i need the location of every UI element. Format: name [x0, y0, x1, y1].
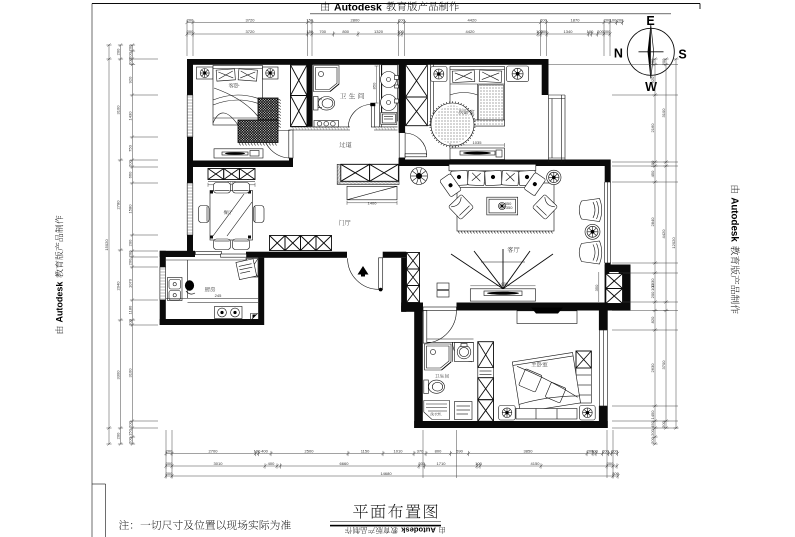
svg-text:100: 100: [591, 448, 598, 453]
svg-text:200: 200: [127, 44, 132, 51]
svg-text:15020: 15020: [104, 239, 109, 251]
svg-text:100: 100: [587, 29, 594, 34]
svg-text:200: 200: [115, 432, 120, 439]
svg-text:2160: 2160: [650, 123, 655, 133]
svg-text:E: E: [646, 14, 654, 28]
svg-text:200: 200: [127, 420, 132, 427]
svg-text:2700: 2700: [209, 448, 219, 453]
svg-text:1035: 1035: [473, 140, 483, 145]
svg-text:920: 920: [650, 76, 655, 83]
svg-text:200: 200: [650, 291, 655, 298]
svg-text:4420: 4420: [661, 229, 666, 239]
svg-text:3700: 3700: [661, 360, 666, 370]
svg-text:660: 660: [127, 171, 132, 178]
svg-text:3100: 3100: [127, 368, 132, 378]
svg-text:200: 200: [127, 258, 132, 265]
svg-text:750: 750: [127, 144, 132, 151]
svg-text:1450: 1450: [650, 410, 655, 420]
svg-text:200: 200: [617, 17, 624, 22]
svg-text:200: 200: [398, 17, 405, 22]
svg-text:450: 450: [650, 170, 655, 177]
svg-text:590: 590: [456, 448, 463, 453]
svg-text:6660: 6660: [340, 461, 350, 466]
svg-text:3100: 3100: [115, 105, 120, 115]
svg-text:1710: 1710: [437, 461, 447, 466]
svg-text:2500: 2500: [305, 448, 315, 453]
svg-text:S: S: [678, 48, 686, 62]
svg-text:200: 200: [612, 471, 619, 476]
svg-text:100: 100: [127, 318, 132, 325]
svg-text:200: 200: [661, 420, 666, 427]
svg-text:200: 200: [650, 58, 655, 65]
svg-text:3850: 3850: [524, 448, 534, 453]
svg-text:12020: 12020: [671, 237, 676, 249]
svg-text:920: 920: [127, 76, 132, 83]
svg-text:820: 820: [650, 316, 655, 323]
svg-text:3300: 3300: [115, 370, 120, 380]
svg-text:4150: 4150: [531, 461, 541, 466]
svg-text:2630: 2630: [650, 363, 655, 373]
svg-text:2800: 2800: [351, 17, 361, 22]
svg-text:400: 400: [261, 448, 268, 453]
svg-text:700: 700: [319, 29, 326, 34]
svg-text:100: 100: [475, 461, 482, 466]
svg-text:800: 800: [342, 29, 349, 34]
svg-text:3010: 3010: [214, 461, 224, 466]
svg-text:N: N: [614, 47, 623, 61]
svg-text:1870: 1870: [571, 17, 581, 22]
svg-text:14680: 14680: [380, 471, 392, 476]
svg-text:1150: 1150: [361, 448, 370, 453]
svg-text:200: 200: [115, 48, 120, 55]
svg-text:100: 100: [650, 283, 655, 290]
svg-text:200: 200: [187, 17, 194, 22]
svg-text:200: 200: [602, 448, 609, 453]
svg-text:200: 200: [127, 250, 132, 257]
svg-text:1430: 1430: [127, 111, 132, 121]
svg-text:400: 400: [268, 461, 275, 466]
svg-text:1180: 1180: [127, 305, 132, 314]
svg-text:350: 350: [594, 284, 599, 291]
svg-text:200: 200: [650, 436, 655, 443]
svg-text:1320: 1320: [374, 29, 384, 34]
svg-text:3100: 3100: [661, 108, 666, 118]
svg-text:850: 850: [372, 82, 377, 89]
svg-text:4420: 4420: [466, 29, 476, 34]
svg-text:200: 200: [418, 461, 425, 466]
svg-text:2040: 2040: [115, 281, 120, 291]
svg-text:2780: 2780: [115, 200, 120, 210]
svg-text:100: 100: [254, 448, 261, 453]
svg-text:1350: 1350: [504, 205, 514, 210]
svg-text:800: 800: [435, 448, 442, 453]
svg-text:200: 200: [541, 29, 548, 34]
svg-text:1340: 1340: [564, 29, 574, 34]
svg-text:3720: 3720: [246, 17, 256, 22]
svg-text:200: 200: [127, 239, 132, 246]
svg-text:200: 200: [127, 159, 132, 166]
svg-text:150: 150: [127, 428, 132, 435]
svg-text:200: 200: [127, 51, 132, 58]
svg-text:1070: 1070: [127, 278, 132, 288]
svg-text:200: 200: [650, 428, 655, 435]
svg-text:200: 200: [661, 58, 666, 65]
svg-text:200: 200: [127, 57, 132, 64]
svg-text:1010: 1010: [394, 448, 404, 453]
svg-text:2840: 2840: [650, 217, 655, 227]
svg-text:245: 245: [215, 293, 222, 298]
svg-text:200: 200: [611, 448, 618, 453]
svg-text:4420: 4420: [468, 17, 478, 22]
svg-text:450: 450: [650, 420, 655, 427]
svg-text:150: 150: [306, 17, 313, 22]
svg-text:200: 200: [127, 436, 132, 443]
svg-text:1580: 1580: [127, 204, 132, 214]
svg-text:200: 200: [540, 17, 547, 22]
svg-text:3720: 3720: [246, 29, 256, 34]
